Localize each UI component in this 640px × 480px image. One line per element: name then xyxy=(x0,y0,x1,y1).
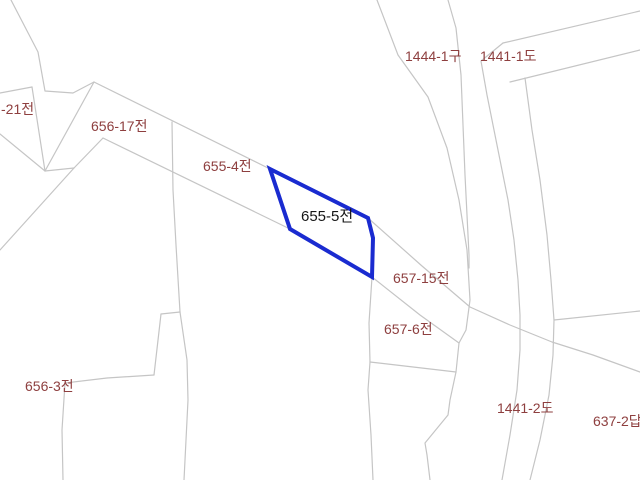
boundary-east-horizontal xyxy=(554,311,640,320)
boundary-diagonal-lower xyxy=(103,138,459,343)
parcel-label: 1444-1구 xyxy=(405,48,462,64)
boundary-horizontal-segment xyxy=(370,362,456,372)
parcel-label: -21전 xyxy=(1,101,34,117)
boundary-jog-horizontal xyxy=(161,312,180,314)
parcel-label: 656-3전 xyxy=(25,378,74,394)
parcel-label: 657-15전 xyxy=(393,270,449,286)
parcel-label: 1441-2도 xyxy=(497,400,554,416)
highlighted-parcel-label: 655-5전 xyxy=(301,208,353,225)
boundary-diagonal-upper xyxy=(94,82,640,372)
boundary-parcel-656-17-left xyxy=(45,82,94,171)
parcel-label: 655-4전 xyxy=(203,158,252,174)
boundary-parcel-21-bottom-edge xyxy=(0,134,45,171)
cadastral-map-viewport[interactable]: -21전656-17전655-4전1444-1구1441-1도657-15전65… xyxy=(0,0,640,480)
boundary-left-descender xyxy=(62,383,65,480)
boundary-topleft-zigzag xyxy=(11,0,94,93)
boundary-parcel-21-top-edge xyxy=(0,87,32,93)
boundary-road-strip-top xyxy=(503,11,640,43)
parcel-label: 656-17전 xyxy=(91,118,147,134)
parcel-label: 657-6전 xyxy=(384,321,433,337)
boundary-vertical-center xyxy=(368,277,373,480)
boundary-road-east-line xyxy=(525,78,554,480)
parcel-label: 1441-1도 xyxy=(480,48,537,64)
boundary-junction-connector xyxy=(45,168,74,171)
boundary-jog-descender xyxy=(154,314,161,375)
cadastral-map-svg[interactable]: -21전656-17전655-4전1444-1구1441-1도657-15전65… xyxy=(0,0,640,480)
boundary-west-road-edge xyxy=(377,0,470,480)
parcel-label: 637-2답 xyxy=(593,413,640,429)
boundary-ridge-west xyxy=(0,138,103,250)
boundary-parcel-21-right-edge xyxy=(32,87,45,171)
boundary-ditch-east-edge xyxy=(448,0,469,268)
boundary-h-line-656-3 xyxy=(65,375,154,383)
map-canvas[interactable]: -21전656-17전655-4전1444-1구1441-1도657-15전65… xyxy=(0,0,640,480)
